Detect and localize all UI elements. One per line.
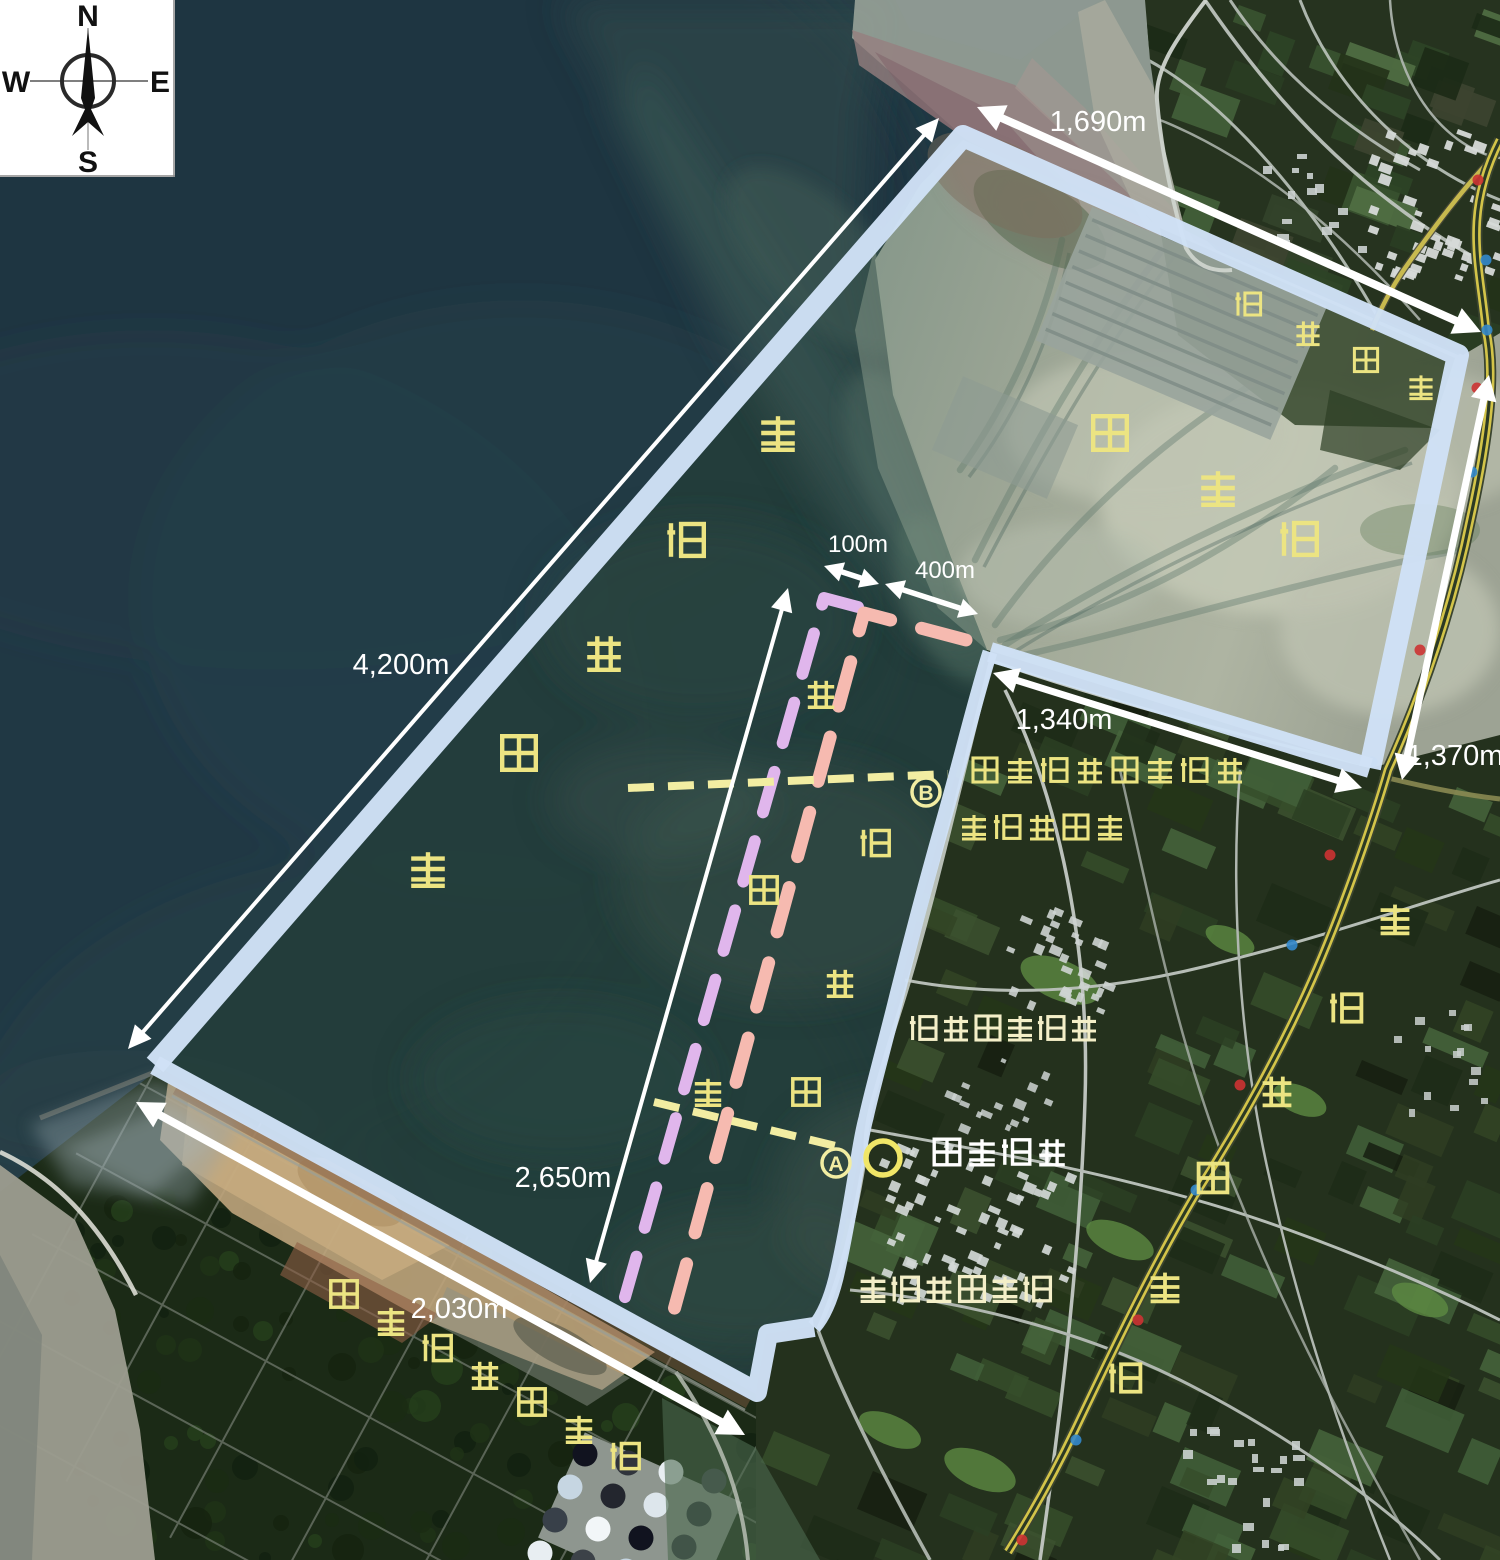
svg-text:2,650m: 2,650m	[515, 1162, 612, 1194]
svg-text:1,370m: 1,370m	[1407, 740, 1500, 772]
svg-text:100m: 100m	[828, 531, 888, 558]
svg-text:A: A	[828, 1153, 843, 1176]
svg-text:W: W	[2, 66, 31, 99]
svg-text:S: S	[78, 146, 98, 179]
svg-text:N: N	[77, 0, 99, 33]
svg-text:E: E	[150, 66, 170, 99]
svg-text:1,690m: 1,690m	[1050, 106, 1147, 138]
svg-text:4,200m: 4,200m	[353, 649, 450, 681]
svg-text:1,340m: 1,340m	[1016, 704, 1113, 736]
svg-text:B: B	[918, 782, 933, 805]
svg-text:2,030m: 2,030m	[411, 1293, 508, 1325]
svg-text:400m: 400m	[915, 557, 975, 584]
